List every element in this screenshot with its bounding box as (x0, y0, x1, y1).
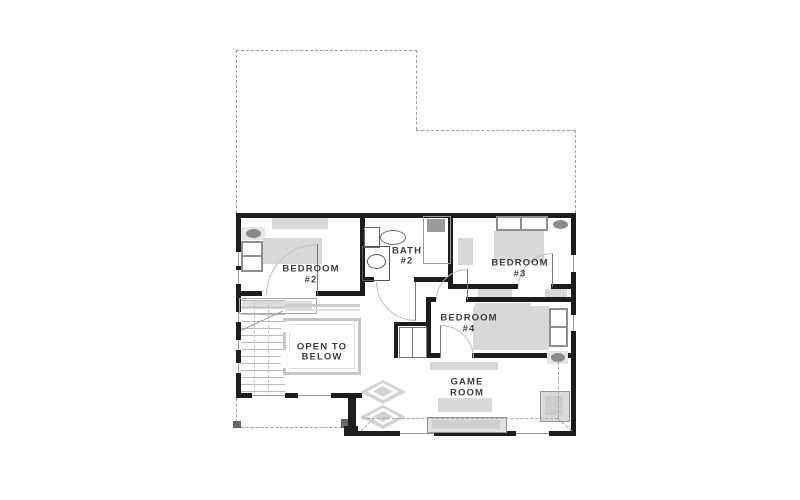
wall-hall-closet-left (394, 322, 398, 358)
room-label-open-to-below2: BELOW (302, 352, 343, 363)
porch-corner-post (233, 421, 241, 428)
floor-plan: BEDROOM #2 BATH #2 BEDROOM #3 BEDROOM #4… (0, 0, 800, 500)
room-label-bedroom3-number: #3 (514, 269, 527, 280)
sofa-cushions (432, 420, 500, 429)
shower-seat (427, 219, 445, 232)
roof-outline-step-horizontal (416, 130, 575, 131)
stair-landing-notch (281, 322, 290, 332)
wall-game-room-bottom (348, 431, 400, 436)
wall-right (571, 272, 576, 315)
sink-basin (380, 230, 406, 245)
room-label-bedroom3: BEDROOM (491, 258, 548, 269)
ceiling-break-line (558, 362, 559, 418)
door-swing-bedroom4 (436, 269, 468, 300)
wall-bedroom2-bottom (316, 291, 365, 296)
headboard-divider (243, 255, 261, 257)
dresser-bedroom2 (272, 218, 328, 229)
headboard-divider (551, 326, 566, 328)
dresser-bedroom3 (458, 238, 473, 265)
wall-right (571, 213, 576, 255)
room-label-bedroom2: BEDROOM (282, 264, 339, 275)
wall-bedroom4-top (466, 297, 576, 302)
room-label-bath2-number: #2 (401, 256, 414, 267)
wall-bottom-left (331, 393, 362, 398)
window (252, 393, 285, 398)
closet-shelf (545, 289, 567, 297)
lamp-icon (553, 220, 568, 229)
headboard-bedroom3 (496, 216, 548, 231)
window (298, 393, 331, 398)
staircase (241, 300, 285, 393)
lamp-icon (246, 229, 261, 238)
wall-hall-closet-top (394, 322, 431, 326)
lamp-icon (551, 353, 565, 362)
room-label-game-room2: ROOM (450, 388, 484, 399)
media-console (430, 362, 498, 370)
wall-bottom-left (236, 393, 252, 398)
game-table (438, 398, 492, 412)
roof-outline-step-vertical (416, 50, 417, 130)
window (571, 315, 576, 331)
headboard-bedroom2 (241, 241, 263, 272)
room-label-game-room: GAME (451, 377, 484, 388)
half-wall (285, 304, 360, 307)
ceiling-break-line (362, 418, 558, 419)
room-label-bedroom4-number: #4 (463, 324, 476, 335)
window (571, 255, 576, 272)
wall-right (571, 331, 576, 436)
headboard-divider (520, 218, 522, 229)
closet-divider (412, 328, 413, 357)
stair-landing-notch (281, 350, 294, 368)
room-label-bedroom2-number: #2 (305, 275, 318, 286)
sink-counter (364, 227, 380, 248)
wall-bedroom2-bottom (236, 291, 262, 296)
room-label-bedroom4: BEDROOM (440, 313, 497, 324)
closet-shelf (478, 289, 512, 297)
hall-closet (399, 327, 427, 358)
wall-game-room-bottom (549, 431, 576, 436)
armchair-cushion (545, 396, 563, 415)
roof-outline-top (236, 50, 417, 51)
roof-outline-right (575, 130, 576, 213)
window (236, 270, 241, 284)
wall-bottom-left (285, 393, 298, 398)
porch-outline-bottom (236, 427, 352, 428)
door-swing-bath2 (376, 282, 416, 321)
half-wall (285, 309, 360, 311)
headboard-bedroom4 (549, 308, 568, 347)
wall-bedroom4-bottom (426, 353, 440, 358)
window (516, 431, 549, 436)
stair-stringer (254, 300, 255, 393)
stair-stringer (268, 300, 269, 393)
roof-outline-left (236, 50, 237, 213)
toilet (367, 254, 386, 269)
